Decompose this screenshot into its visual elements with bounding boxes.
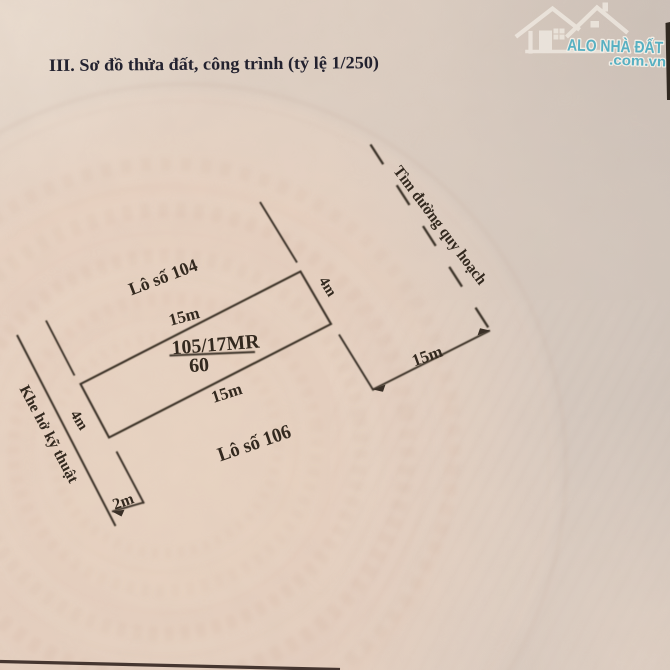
- svg-text:III. Sơ đồ thửa đất, công trìn: III. Sơ đồ thửa đất, công trình (tỷ lệ 1…: [49, 52, 379, 75]
- svg-text:60: 60: [188, 354, 210, 378]
- svg-text:.com.vn: .com.vn: [609, 52, 667, 70]
